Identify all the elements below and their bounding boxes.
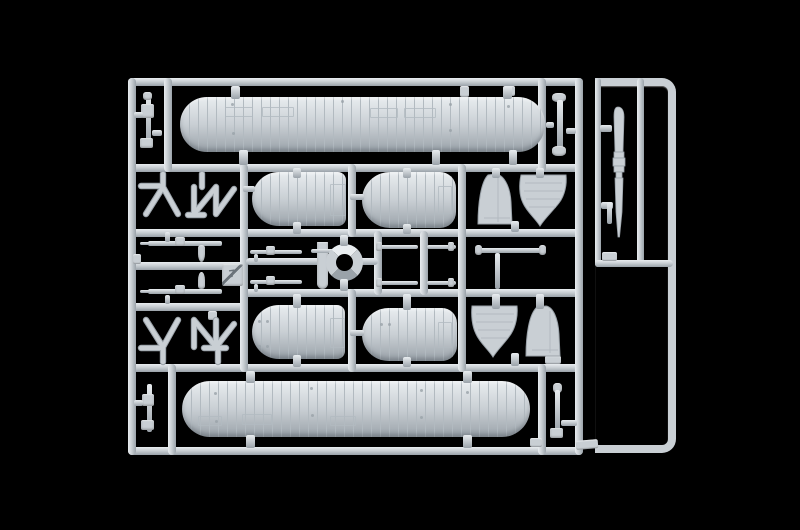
tail-fin-part xyxy=(526,306,560,356)
tail-fin-group-upper xyxy=(470,170,575,230)
sprue-stub xyxy=(293,168,301,178)
locating-hole xyxy=(310,387,313,390)
locating-hole xyxy=(258,345,261,348)
sprue-stub xyxy=(293,294,301,308)
sprue-gate-tab xyxy=(460,86,469,97)
machine-gun-part xyxy=(250,280,302,284)
runner-number: 7 xyxy=(228,270,236,281)
sprue-stub xyxy=(246,371,255,383)
locating-hole xyxy=(449,129,452,132)
strut-rod-part xyxy=(380,281,418,285)
runner-rail-v1 xyxy=(164,78,172,172)
gun-barrel-tip xyxy=(140,242,150,245)
propeller-part xyxy=(609,106,629,242)
sprue-stub xyxy=(340,235,348,246)
locating-hole xyxy=(388,323,391,326)
sprue-stub xyxy=(231,86,240,99)
sprue-stub xyxy=(403,168,411,178)
gun-magazine xyxy=(175,237,185,246)
locating-hole xyxy=(232,132,235,135)
sprue-stub xyxy=(152,130,162,136)
strut-flare xyxy=(140,138,153,148)
lower-wing-part xyxy=(182,381,530,437)
machine-gun-part xyxy=(250,250,302,254)
runner-rail-ring-right-post xyxy=(420,231,428,295)
sprue-gate-tab xyxy=(530,438,542,447)
locating-hole xyxy=(341,100,344,103)
side-runner-rail-left xyxy=(595,78,601,267)
locating-hole xyxy=(380,323,383,326)
locating-hole xyxy=(449,103,452,106)
runner-rail-bottom xyxy=(128,447,583,455)
sprue-stub xyxy=(293,355,301,367)
rod-bracket xyxy=(376,242,382,251)
sprue-stub xyxy=(509,150,517,165)
sprue-stub xyxy=(165,232,170,242)
sprue-gate-tab xyxy=(602,252,617,261)
sprue-stub xyxy=(134,112,143,118)
bomb-part xyxy=(198,245,205,262)
strut-shaft xyxy=(555,390,560,432)
sprue-stub xyxy=(134,400,143,406)
gun-barrel-tip xyxy=(140,290,150,293)
wing-panel-line xyxy=(262,107,294,117)
locating-hole xyxy=(258,320,261,323)
sprue-stub xyxy=(600,125,612,132)
upper-wing-part xyxy=(180,97,545,152)
sprue-stub xyxy=(403,294,411,310)
side-runner-rail-mid xyxy=(637,78,644,267)
sprue-stub xyxy=(350,194,364,200)
tail-fin-group-lower xyxy=(468,303,573,361)
rod-end-cap xyxy=(475,245,482,255)
machine-gun-part xyxy=(148,241,222,246)
sprue-stub xyxy=(293,222,301,234)
strut-flare xyxy=(550,428,563,438)
wing-panel-line xyxy=(225,107,253,117)
sprue-stub xyxy=(165,295,170,304)
runner-number-plate: 7 xyxy=(222,264,243,286)
bomb-part xyxy=(198,272,205,289)
tail-fin-part xyxy=(478,174,512,224)
rod-end-cap xyxy=(539,245,546,255)
sprue-stub xyxy=(403,357,411,367)
sprue-stub xyxy=(511,221,519,232)
sprue-stub xyxy=(243,186,255,192)
locating-hole xyxy=(420,389,423,392)
sprue-stub xyxy=(503,86,512,99)
strut-rod-part xyxy=(478,248,544,253)
strut-rod-part xyxy=(380,245,418,249)
rod-bracket xyxy=(448,278,454,287)
float-panel-line xyxy=(438,322,452,348)
wing-panel-line xyxy=(242,414,272,425)
sprue-stub xyxy=(492,294,500,309)
sprue-stub xyxy=(536,294,544,309)
locating-hole xyxy=(466,391,469,394)
side-runner-foot xyxy=(576,439,599,450)
locating-hole xyxy=(266,320,269,323)
side-runner-rail-cross xyxy=(595,260,673,267)
cabane-strut-assembly xyxy=(134,172,240,230)
locating-hole xyxy=(507,105,510,108)
sprue-stub xyxy=(536,168,544,178)
float-panel-line xyxy=(330,184,346,216)
sprue-stub xyxy=(239,150,248,165)
machine-gun-part xyxy=(148,289,222,294)
rod-bracket xyxy=(448,242,454,251)
cowl-ring-part xyxy=(326,244,363,281)
runner-rail-top xyxy=(128,78,583,86)
sprue-stub xyxy=(561,420,577,426)
strut-knob xyxy=(143,92,152,100)
locating-hole xyxy=(231,103,234,106)
runner-rail-v4 xyxy=(458,164,466,372)
locating-hole xyxy=(311,414,314,417)
rod-bracket xyxy=(376,278,382,287)
sprue-stub xyxy=(511,353,519,366)
wing-panel-line xyxy=(198,416,222,426)
strut-flare xyxy=(552,146,566,156)
runner-rail-left xyxy=(128,78,136,455)
sprue-stub xyxy=(432,150,440,165)
gun-magazine xyxy=(175,285,185,294)
strut-bulge xyxy=(142,394,154,406)
float-panel-line xyxy=(330,318,345,348)
runner-rail-v3a xyxy=(348,164,356,237)
sprue-stub xyxy=(403,224,411,234)
gun-drum xyxy=(266,246,275,255)
runner-rail-right xyxy=(575,78,583,455)
sprue-stub xyxy=(340,279,348,291)
sprue-stub xyxy=(495,253,500,289)
wing-panel-line xyxy=(330,416,356,426)
wing-panel-line xyxy=(404,108,436,118)
sprue-stub xyxy=(566,128,576,134)
wing-panel-line xyxy=(370,108,398,118)
strut-flare xyxy=(141,420,154,430)
float-panel-line xyxy=(438,186,452,214)
strut-shaft xyxy=(557,100,563,148)
sprue-stub xyxy=(246,435,255,448)
sprue-stub xyxy=(546,122,554,128)
gun-mount xyxy=(254,284,258,292)
sprue-photo: 7 xyxy=(0,0,800,530)
sprue-stub xyxy=(607,202,612,224)
sprue-stub xyxy=(492,168,500,178)
locating-hole xyxy=(266,345,269,348)
locating-hole xyxy=(420,416,423,419)
sprue-stub xyxy=(350,330,364,336)
sprue-stub xyxy=(463,371,472,383)
cabane-strut-assembly xyxy=(134,304,240,364)
locating-hole xyxy=(215,420,218,423)
gun-drum xyxy=(266,276,275,285)
locating-hole xyxy=(214,392,217,395)
gun-mount xyxy=(254,254,258,262)
runner-rail-v7 xyxy=(168,364,176,455)
sprue-stub xyxy=(463,435,472,448)
sprue-gate-tab xyxy=(133,254,141,264)
